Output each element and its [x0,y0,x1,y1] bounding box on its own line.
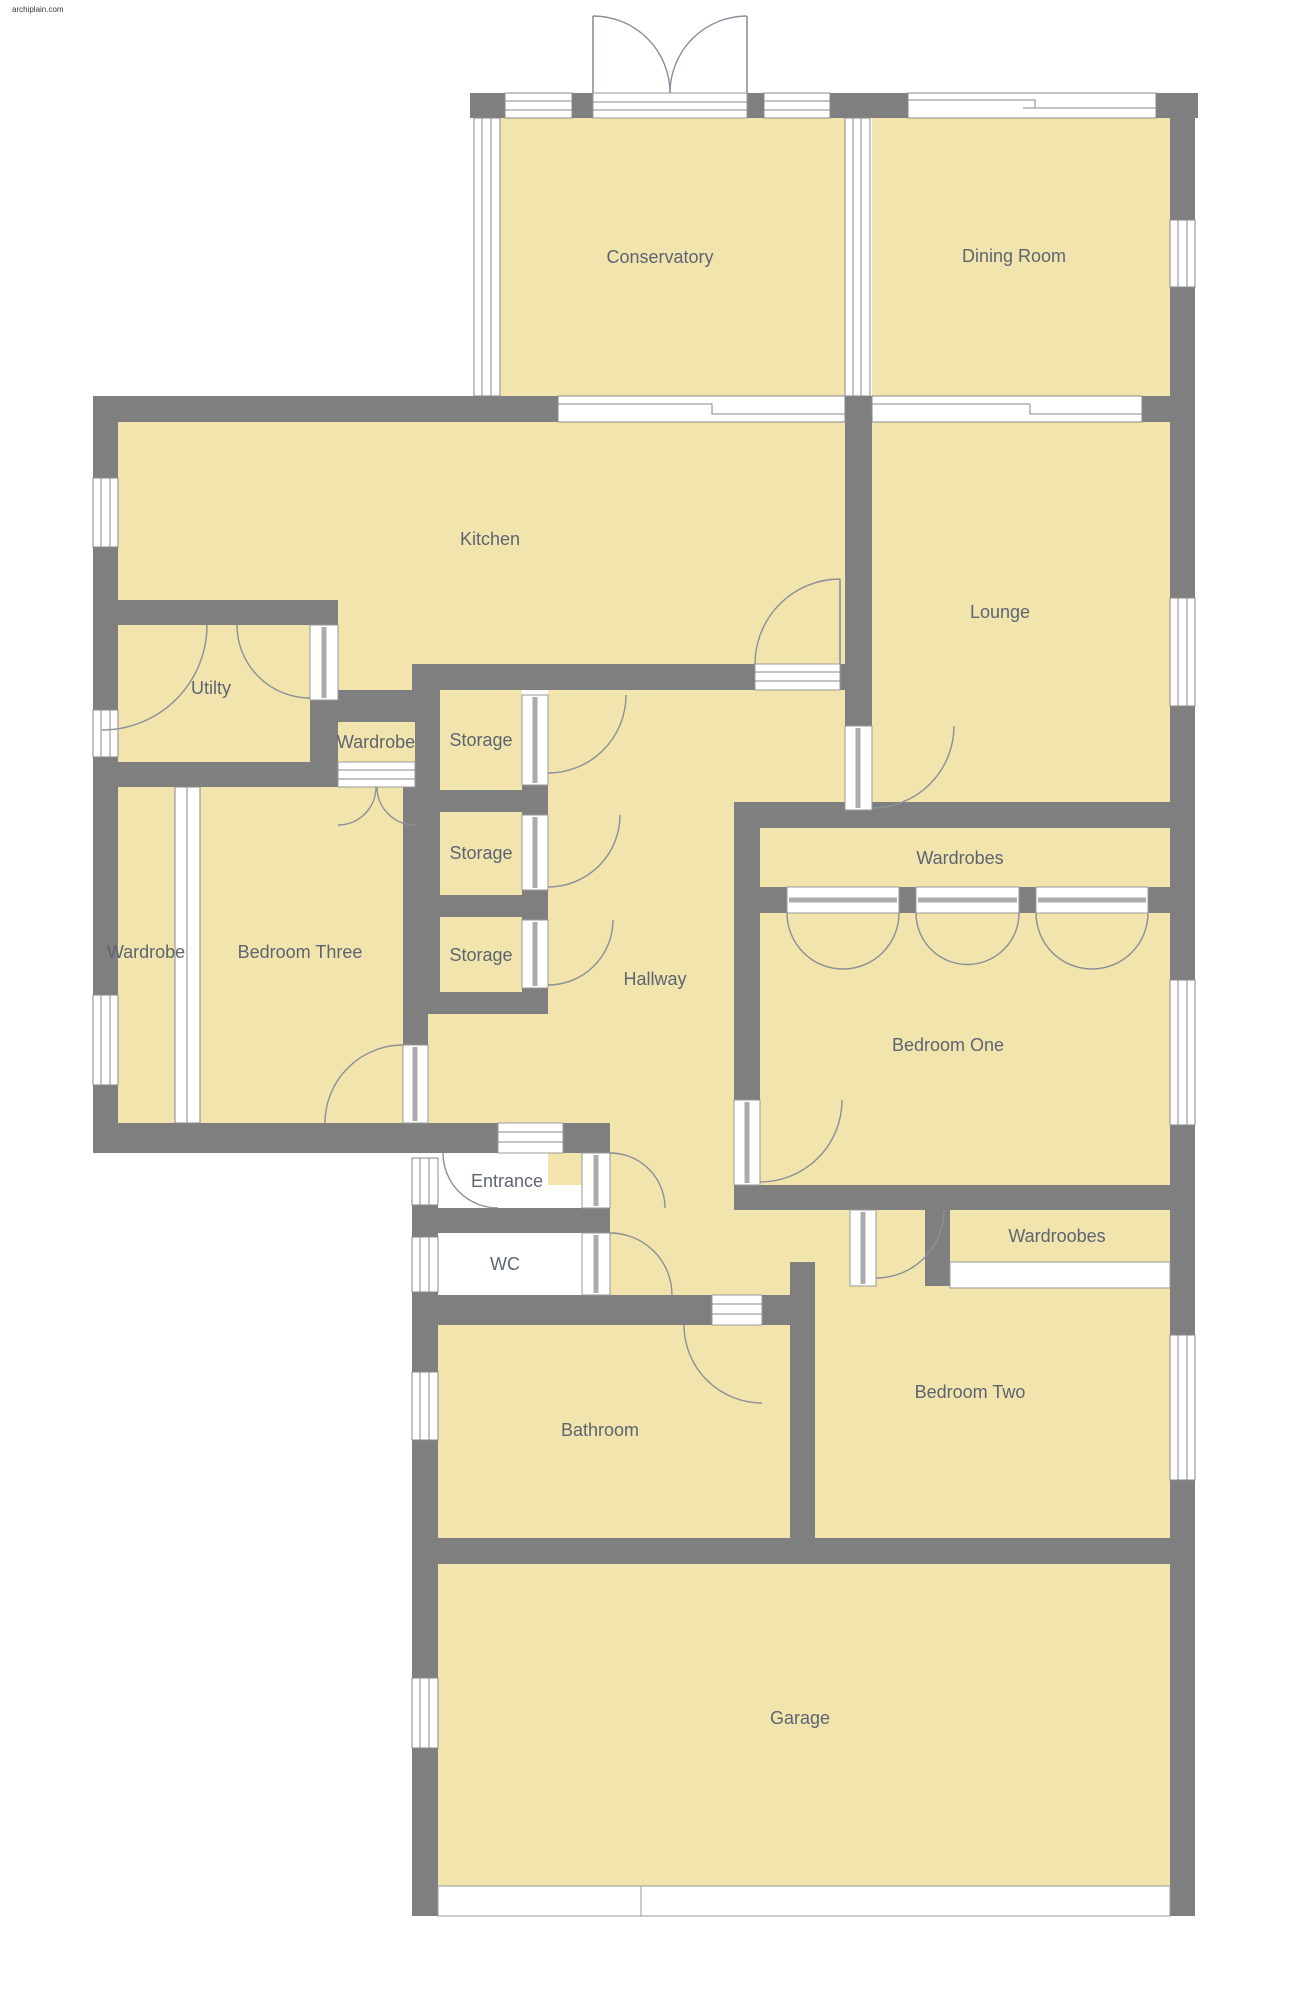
floor-kitchen [338,664,412,690]
room-label-wardroobes: Wardroobes [1008,1226,1105,1246]
floor-hallway [428,1014,548,1123]
room-label-wc: WC [490,1254,520,1274]
floor-bedroom-two [815,1286,1170,1538]
window [93,995,118,1085]
floor-bedroom-two [876,1210,925,1286]
room-label-bedroom-one: Bedroom One [892,1035,1004,1055]
door-wardroobes-sliding [950,1262,1170,1288]
window [1170,598,1195,706]
floorplan-svg: Conservatory Dining Room Kitchen Lounge … [0,0,1290,2000]
room-label-conservatory: Conservatory [606,247,713,267]
room-label-storage-3: Storage [449,945,512,965]
floor-hallway [610,1262,790,1295]
window [412,1678,438,1748]
room-label-utility: Utilty [191,678,231,698]
window [412,1372,438,1440]
window [93,710,118,757]
window [1170,980,1195,1125]
room-label-dining: Dining Room [962,246,1066,266]
window [412,1237,438,1292]
room-label-wardrobe-left: Wardrobe [107,942,185,962]
watermark-text: archiplain.com [12,5,64,14]
window [872,396,1142,422]
room-floors [118,118,1170,1886]
room-label-bedroom-three: Bedroom Three [238,942,363,962]
floor-kitchen [338,600,845,664]
room-label-bathroom: Bathroom [561,1420,639,1440]
garage-doors [438,1886,1170,1916]
floor-kitchen [118,422,845,600]
room-label-wardrobes: Wardrobes [916,848,1003,868]
room-label-entrance: Entrance [471,1171,543,1191]
window [908,93,1156,118]
french-door [593,16,747,118]
room-label-garage: Garage [770,1708,830,1728]
window [505,93,572,118]
floor-hallway [548,690,845,802]
window [93,478,118,547]
room-label-wardrobe-small: Wardrobe [337,732,415,752]
room-label-lounge: Lounge [970,602,1030,622]
window [845,118,870,396]
floor-hallway [815,1210,850,1286]
window [474,118,500,396]
window [1170,1335,1195,1480]
room-label-hallway: Hallway [623,969,686,989]
room-label-storage-1: Storage [449,730,512,750]
floorplan-page: Conservatory Dining Room Kitchen Lounge … [0,0,1290,2000]
window [558,396,845,422]
window [412,1158,438,1205]
room-label-kitchen: Kitchen [460,529,520,549]
window [764,93,830,118]
room-label-storage-2: Storage [449,843,512,863]
room-label-bedroom-two: Bedroom Two [915,1382,1026,1402]
window [1170,220,1195,287]
